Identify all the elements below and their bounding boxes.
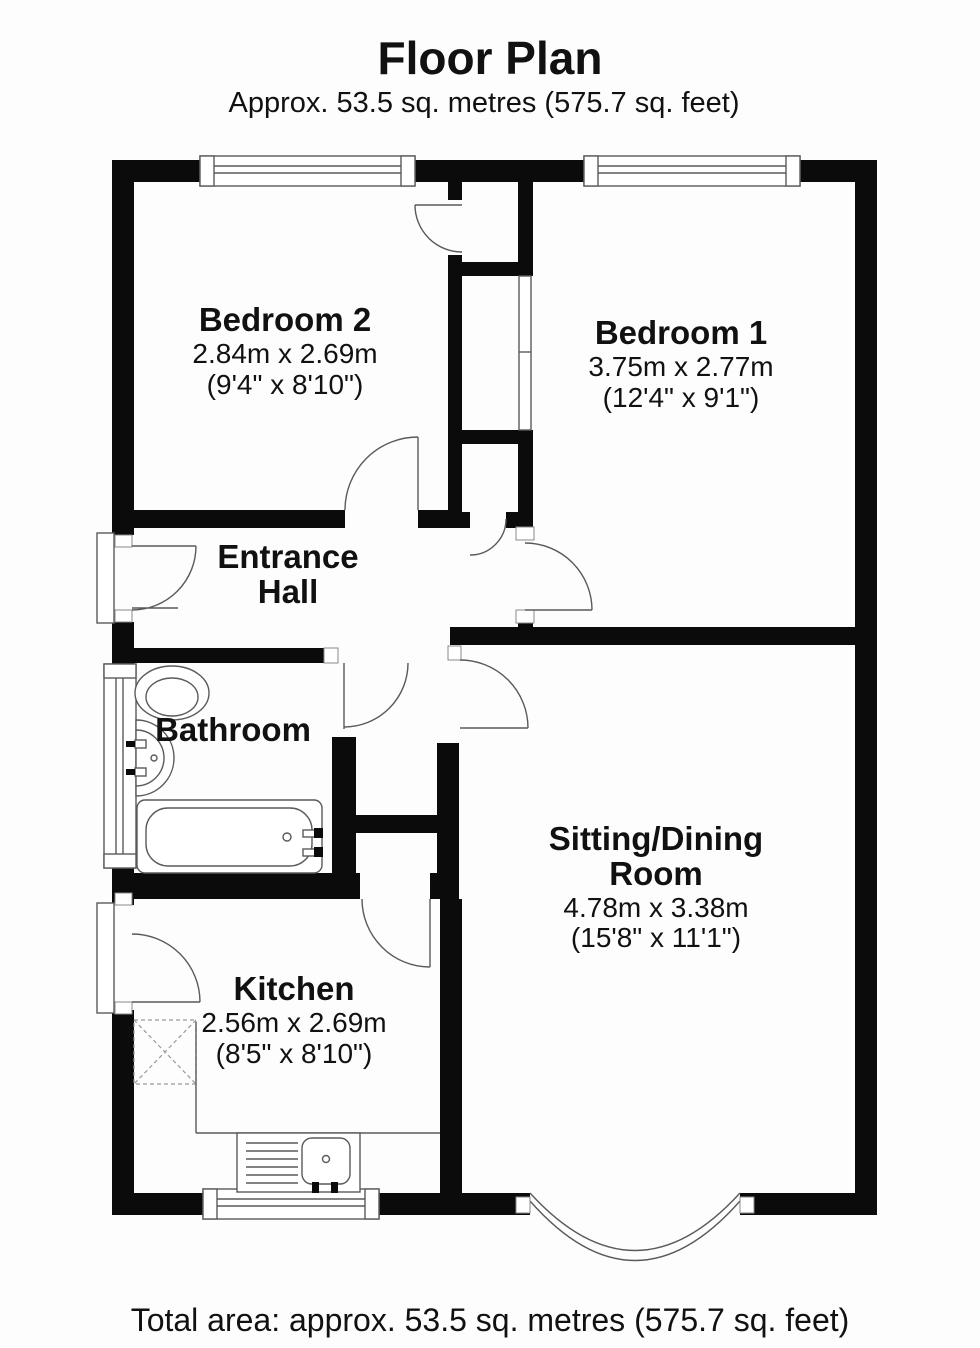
door-jamb [516,610,534,623]
window-cap [401,156,415,186]
room-metric-dims: 2.84m x 2.69m [192,338,377,369]
wall-segment [855,160,877,1215]
kitchen-door-arc [362,899,430,967]
room-metric-dims: 3.75m x 2.77m [588,351,773,382]
door-jamb [516,1197,530,1213]
room-name: Bathroom [155,711,311,748]
bathtub-tap [314,847,323,857]
front-door-arc [132,546,196,610]
bedroom-1-window [584,156,800,186]
sink-bowl [302,1138,350,1184]
built-in-wardrobe [519,276,531,430]
wall-segment [450,627,855,645]
door-jambs [115,527,534,1014]
room-imperial-dims: (9'4" x 8'10") [207,369,364,400]
room-name: Kitchen [233,970,354,1007]
room-label-bathroom: Bathroom [155,711,311,748]
room-imperial-dims: (15'8" x 11'1") [571,922,741,953]
wall-segment [462,512,470,528]
basin-tap [126,741,135,747]
room-metric-dims: 2.56m x 2.69m [201,1007,386,1038]
window-cap [584,156,598,186]
wall-segment [518,182,533,270]
wardrobe-door-arc [415,205,462,252]
bathroom-window [104,664,136,868]
window-cap [203,1189,217,1219]
sitting-room-door-arc [460,660,528,728]
window-frame [104,664,136,868]
wall-segment [448,182,462,200]
airing-cupboard-door-arc [470,519,506,555]
basin-tap [126,769,135,775]
door-jamb [115,1002,132,1014]
wall-segment [356,815,437,833]
wall-segment [448,430,533,444]
door-jamb [115,610,132,622]
bedroom-2-window [200,156,415,186]
wall-segment [462,262,533,276]
window-cap [104,664,136,678]
door-jamb [448,646,461,660]
total-area-text: Total area: approx. 53.5 sq. metres (575… [131,1302,850,1338]
window-frame [200,156,415,186]
door-jamb [115,893,132,905]
sink-tap [331,1182,338,1193]
wall-segment [410,160,588,182]
bay-window-outer-curve [530,1201,740,1261]
window-frame [584,156,800,186]
bedroom-1-door-arc [525,543,592,610]
room-metric-dims: 4.78m x 3.38m [563,892,748,923]
door-jamb [516,527,534,540]
bathtub-icon [137,800,322,873]
room-label-sitting-dining: Sitting/Dining Room 4.78m x 3.38m (15'8"… [549,820,763,953]
bay-window-inner-curve [530,1193,740,1251]
wall-segment [440,899,462,1193]
window-cap [104,854,136,868]
sink-tap [312,1182,319,1193]
window-cap [786,156,800,186]
window-frame [203,1189,379,1219]
room-label-kitchen: Kitchen 2.56m x 2.69m (8'5" x 8'10") [201,970,386,1069]
window-cap [365,1189,379,1219]
room-label-bedroom-2: Bedroom 2 2.84m x 2.69m (9'4" x 8'10") [192,301,377,400]
front-door-step [97,533,114,623]
page-subtitle: Approx. 53.5 sq. metres (575.7 sq. feet) [229,87,740,119]
room-imperial-dims: (12'4" x 9'1") [603,382,760,413]
wall-segment [372,1193,530,1215]
room-name: Entrance [217,538,358,575]
wall-segment [506,512,533,528]
wall-segment [134,648,338,663]
wall-segment [134,873,360,899]
back-door-step [97,903,114,1013]
bay-window [516,1193,754,1261]
wall-segment [448,255,462,528]
room-imperial-dims: (8'5" x 8'10") [216,1038,373,1069]
floor-plan-drawing: Floor Plan Approx. 53.5 sq. metres (575.… [0,0,980,1348]
back-door-arc [132,934,200,1002]
page-title: Floor Plan [378,32,603,84]
kitchen-sink-icon [237,1133,360,1193]
door-jamb [324,648,338,663]
bedroom-2-door-arc [345,437,418,510]
bathtub-tap [314,828,323,838]
room-label-bedroom-1: Bedroom 1 3.75m x 2.77m (12'4" x 9'1") [588,314,773,413]
basin-tap [135,768,146,776]
door-jamb [115,535,132,547]
wall-segment [112,1010,134,1215]
wardrobe-front [519,276,531,430]
bathroom-door-arc [344,663,408,729]
wall-segment [112,160,134,535]
room-name: Hall [258,573,319,610]
room-name: Room [609,855,703,892]
kitchen-window [203,1189,379,1219]
room-label-entrance-hall: Entrance Hall [217,538,358,610]
room-name: Bedroom 2 [199,301,371,338]
window-cap [200,156,214,186]
bathroom-fixtures [126,666,323,873]
room-name: Sitting/Dining [549,820,763,857]
door-jamb [740,1197,754,1213]
floor-plan-page: Floor Plan Approx. 53.5 sq. metres (575.… [0,0,980,1348]
basin-tap [135,740,146,748]
wall-segment [430,873,459,899]
room-name: Bedroom 1 [595,314,767,351]
wall-segment [740,1193,877,1215]
wall-segment [134,510,345,528]
appliance-space-icon [134,1020,196,1084]
